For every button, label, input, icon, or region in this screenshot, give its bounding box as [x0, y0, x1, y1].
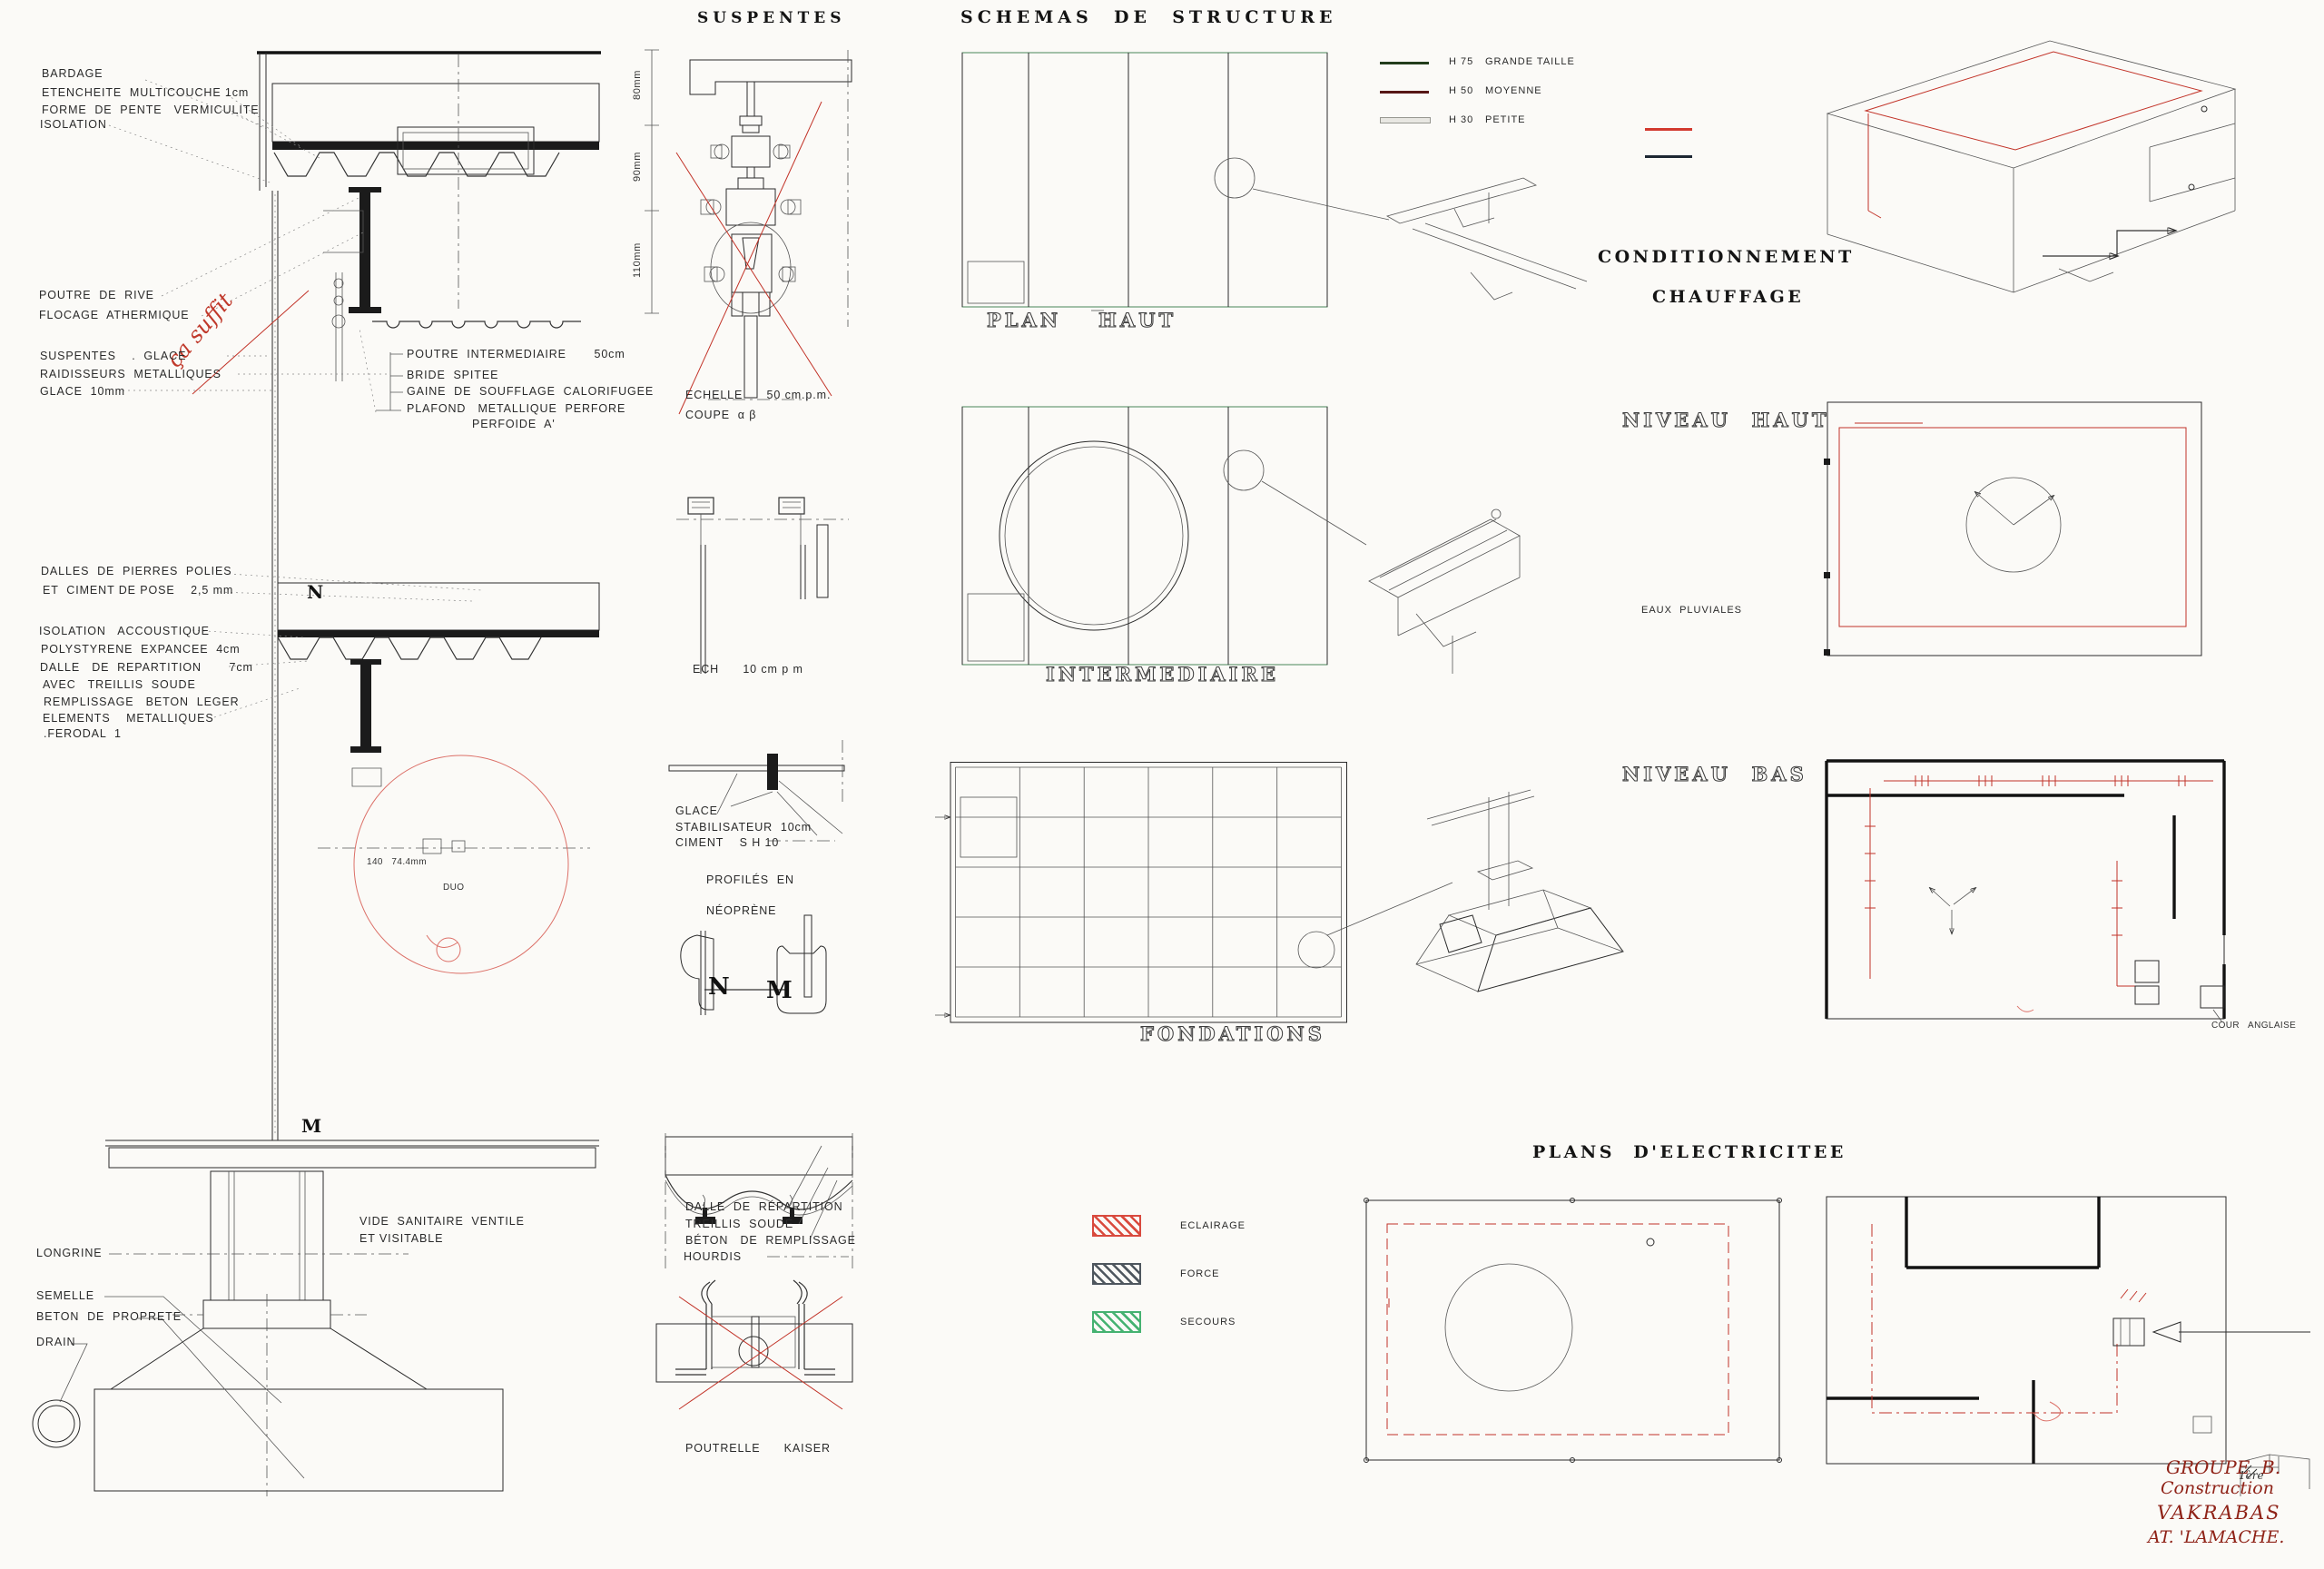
title-chauffage: CHAUFFAGE	[1652, 287, 1804, 307]
label-stabilisateur: STABILISATEUR 10cm	[675, 821, 812, 834]
label-glace-10: GLACE 10mm	[40, 385, 125, 398]
label-drain: DRAIN	[36, 1336, 75, 1348]
dim-90mm: 90mm	[632, 152, 643, 182]
label-suspentes-glace: SUSPENTES . GLACE	[40, 350, 186, 362]
label-echelle-50: ECHELLE 50 cm.p.m.	[685, 389, 831, 401]
label-dalles-pierres: DALLES DE PIERRES POLIES	[41, 565, 231, 577]
label-treillis-soude: TREILLIS SOUDÉ	[685, 1218, 793, 1230]
label-longrine: LONGRINE	[36, 1247, 103, 1259]
marker-m-profile: M	[766, 977, 793, 1004]
label-isolation: ISOLATION	[40, 118, 107, 131]
marker-n-profile: N	[708, 973, 730, 1001]
title-niveau-bas: NIVEAU BAS	[1622, 763, 1807, 785]
legend-label-petite: PETITE	[1485, 114, 1526, 125]
legend-swatch-force	[1092, 1263, 1141, 1285]
signature-note: 1ère	[2239, 1469, 2264, 1482]
label-ferodal: .FERODAL 1	[44, 727, 122, 740]
label-etancheite: ETENCHEITE MULTICOUCHE 1cm	[42, 86, 249, 99]
structure-plans	[935, 53, 1623, 1022]
legend-code-h75: H 75	[1449, 56, 1473, 67]
label-cour-anglaise: COUR ANGLAISE	[2211, 1021, 2296, 1031]
label-semelle: SEMELLE	[36, 1289, 94, 1302]
legend-swatch-secours	[1092, 1311, 1141, 1333]
legend-code-h30: H 30	[1449, 114, 1473, 125]
legend-line-h75	[1380, 62, 1429, 64]
label-vide-sanitaire: VIDE SANITAIRE VENTILE	[359, 1215, 525, 1228]
label-bride-spitee: BRIDE SPITEE	[407, 369, 498, 381]
title-conditionnement: CONDITIONNEMENT	[1598, 247, 1855, 267]
legend-label-grande-taille: GRANDE TAILLE	[1485, 56, 1575, 67]
title-plans-electricitee: PLANS D'ELECTRICITEE	[1532, 1142, 1846, 1162]
label-duo: DUO	[443, 883, 464, 893]
label-beton-proprete: BETON DE PROPRETE	[36, 1310, 182, 1323]
legend-label-moyenne: MOYENNE	[1485, 85, 1542, 96]
label-flocage: FLOCAGE ATHERMIQUE	[39, 309, 190, 321]
label-et-visitable: ET VISITABLE	[359, 1232, 443, 1245]
hvac-plans	[1824, 41, 2235, 1022]
label-elements-metalliques: ELEMENTS METALLIQUES	[43, 712, 214, 725]
title-schemas-structure: SCHEMAS DE STRUCTURE	[960, 7, 1337, 27]
label-poutre-de-rive: POUTRE DE RIVE	[39, 289, 154, 301]
title-plan: PLAN	[987, 309, 1061, 331]
label-profiles-en: PROFILÉS EN	[706, 873, 794, 886]
label-avec-treillis: AVEC TREILLIS SOUDE	[43, 678, 196, 691]
legend-label-eclairage: ECLAIRAGE	[1180, 1220, 1246, 1231]
legend-label-force: FORCE	[1180, 1268, 1220, 1279]
label-neoprene: NÉOPRÈNE	[706, 904, 776, 917]
drawing-canvas	[0, 0, 2324, 1569]
title-niveau-haut: NIVEAU HAUT	[1622, 409, 1830, 431]
wall-section-detail	[33, 53, 601, 1496]
label-polystyrene: POLYSTYRENE EXPANCEE 4cm	[41, 643, 241, 656]
label-perfoide: PERFOIDE A'	[472, 418, 556, 430]
title-fondations: FONDATIONS	[1140, 1022, 1325, 1045]
label-poutrelle-kaiser: POUTRELLE KAISER	[685, 1442, 831, 1455]
label-bardage: BARDAGE	[42, 67, 103, 80]
legend-line-red	[1645, 128, 1692, 131]
marker-n-section: N	[307, 581, 323, 603]
label-dim-140: 140 74.4mm	[367, 857, 427, 867]
label-glace: GLACE	[675, 804, 718, 817]
signature-ligne3: VAKRABAS	[2157, 1502, 2281, 1524]
dim-80mm: 80mm	[632, 70, 643, 100]
label-dalle-repartition-7: DALLE DE REPARTITION 7cm	[40, 661, 253, 674]
legend-line-h30	[1380, 117, 1431, 123]
title-suspentes: SUSPENTES	[697, 9, 846, 27]
legend-code-h50: H 50	[1449, 85, 1473, 96]
label-isolation-acoustique: ISOLATION ACCOUSTIQUE	[39, 625, 210, 637]
legend-swatch-eclairage	[1092, 1215, 1141, 1237]
label-forme-pente: FORME DE PENTE VERMICULITE	[42, 104, 260, 116]
dim-110mm: 110mm	[632, 242, 643, 278]
label-gaine-soufflage: GAINE DE SOUFFLAGE CALORIFUGEE	[407, 385, 654, 398]
legend-line-h50	[1380, 91, 1429, 94]
label-remplissage-beton: REMPLISSAGE BETON LEGER	[44, 696, 240, 708]
title-intermediaire: INTERMEDIAIRE	[1046, 663, 1279, 686]
label-dalle-repartition: DALLE DE RÉPARTITION	[685, 1200, 843, 1213]
label-hourdis: HOURDIS	[684, 1250, 742, 1263]
label-ech-10: ECH 10 cm p m	[693, 663, 803, 676]
label-coupe-alpha-beta: COUPE α β	[685, 409, 756, 421]
label-plafond-metallique: PLAFOND METALLIQUE PERFORE	[407, 402, 625, 415]
label-beton-remplissage: BÉTON DE REMPLISSAGE	[685, 1234, 856, 1247]
label-poutre-intermediaire: POUTRE INTERMEDIAIRE 50cm	[407, 348, 625, 360]
drawing-sheet: BARDAGE ETENCHEITE MULTICOUCHE 1cm FORME…	[0, 0, 2324, 1569]
label-eaux-pluviales: EAUX PLUVIALES	[1641, 605, 1742, 616]
marker-m-section: M	[301, 1115, 321, 1137]
title-haut: HAUT	[1098, 309, 1177, 331]
legend-label-secours: SECOURS	[1180, 1317, 1236, 1327]
label-raidisseurs: RAIDISSEURS METALLIQUES	[40, 368, 222, 380]
label-ciment-sh10: CIMENT S H 10	[675, 836, 779, 849]
label-ciment-pose: ET CIMENT DE POSE 2,5 mm	[43, 584, 233, 597]
signature-ligne4: AT. 'LAMACHE.	[2148, 1527, 2284, 1547]
legend-line-black	[1645, 155, 1692, 158]
electric-plans	[1364, 1197, 2311, 1496]
